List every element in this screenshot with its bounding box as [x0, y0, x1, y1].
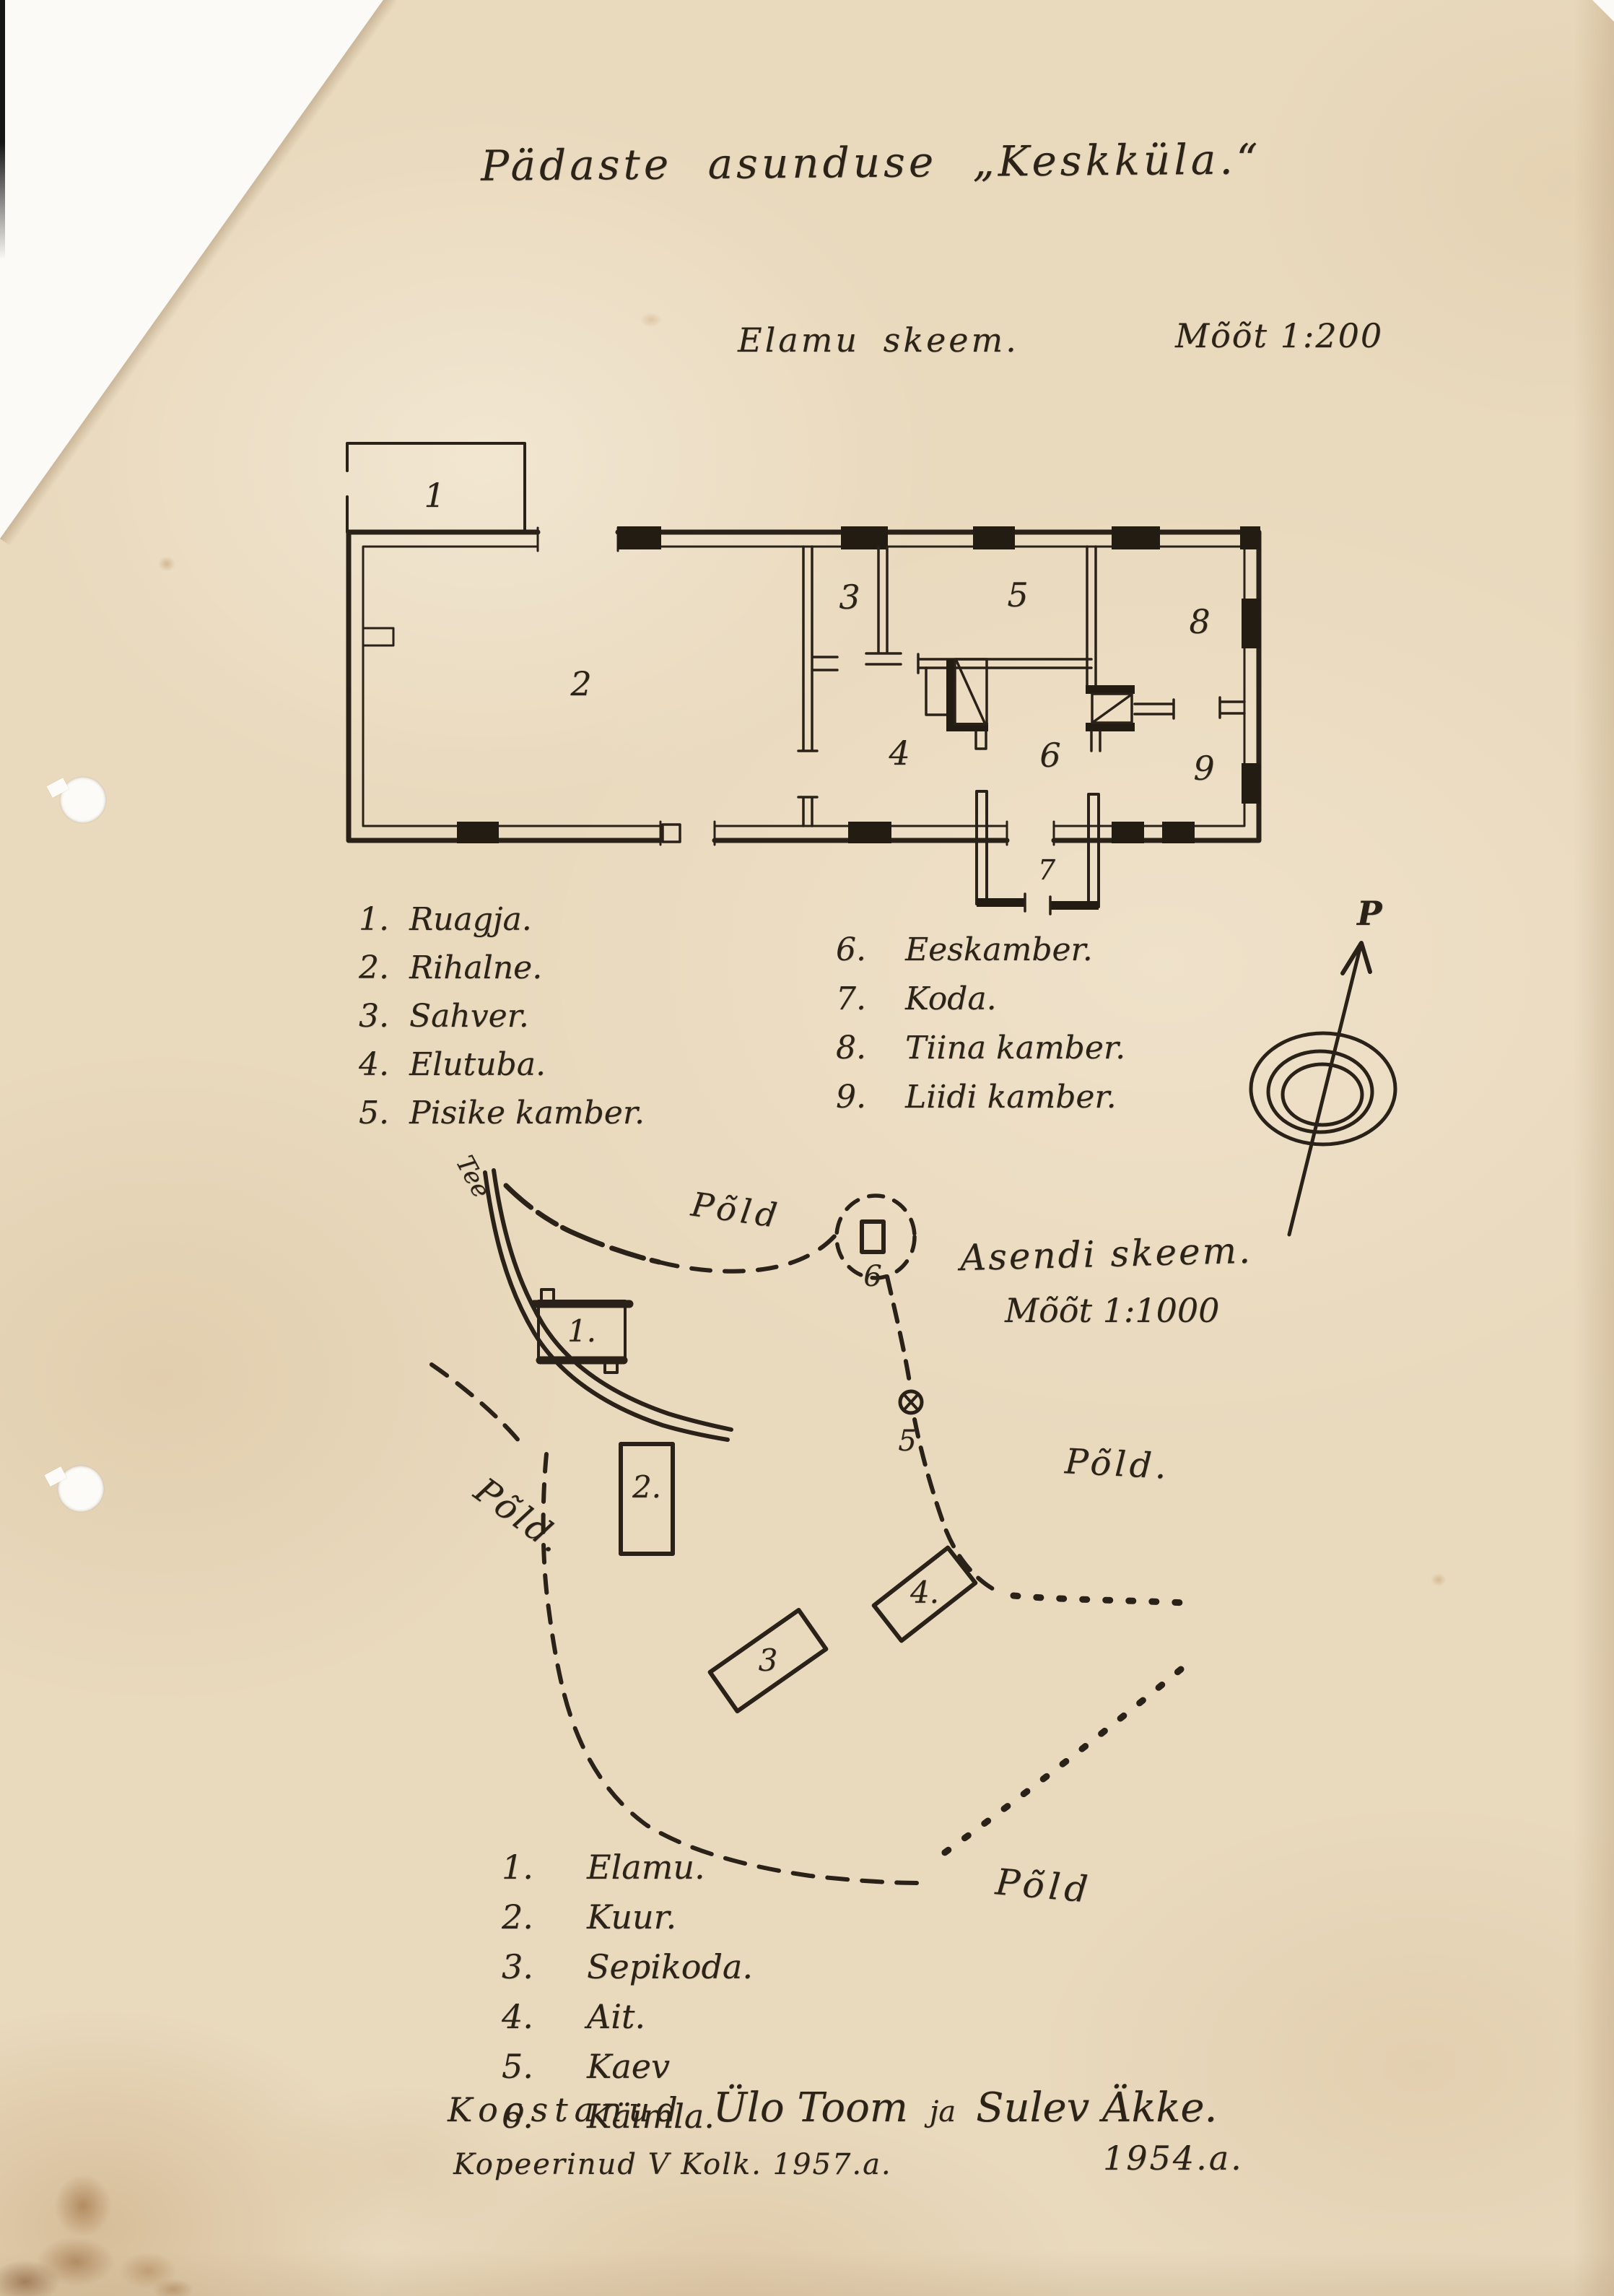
legend-item: 4.Elutuba.	[359, 1040, 645, 1089]
legend-item-number: 1.	[502, 1843, 587, 1892]
scanned-plan-page: Pädaste asunduse „Keskküla.“ Elamu skeem…	[0, 0, 1614, 2296]
legend-item-number: 5.	[502, 2042, 587, 2092]
credits-year-right: 1954.a.	[1103, 2141, 1244, 2175]
legend-item-label: Ruagja.	[409, 895, 532, 944]
legend-item-number: 5.	[359, 1089, 409, 1137]
legend-item: 8.Tiina kamber.	[836, 1024, 1125, 1073]
compass-label: P	[1357, 897, 1382, 930]
site-marker-2: 2.	[632, 1472, 661, 1503]
porch-walls	[977, 791, 1099, 914]
legend-item: 1.Ruagja.	[359, 895, 645, 944]
legend-item: 1.Elamu.	[502, 1843, 753, 1892]
legend-item-number: 3.	[359, 992, 409, 1040]
room-number-4: 4	[889, 736, 909, 770]
room-number-5: 5	[1007, 578, 1028, 612]
room-number-1: 1	[424, 479, 445, 512]
page-title: Pädaste asunduse „Keskküla.“	[481, 138, 1262, 186]
site-marker-3: 3	[759, 1645, 778, 1676]
legend-item-number: 3.	[502, 1942, 587, 1992]
legend-item: 5.Pisike kamber.	[359, 1089, 645, 1137]
stove-symbol	[946, 659, 988, 749]
credits-prefix: Koostanud	[448, 2093, 684, 2126]
legend-item-label: Kuur.	[587, 1892, 676, 1942]
legend-item-label: Sahver.	[409, 992, 529, 1040]
well-symbol	[900, 1391, 922, 1413]
hole-punch	[60, 777, 106, 823]
legend-item-number: 6.	[836, 926, 905, 975]
stove-symbol	[1086, 685, 1135, 751]
credits-author-2: Sulev Äkke.	[976, 2088, 1217, 2128]
legend-item-number: 9.	[836, 1073, 905, 1122]
legend-item-label: Pisike kamber.	[409, 1089, 645, 1137]
site-marker-4: 4.	[910, 1578, 939, 1608]
field-label-right: Põld.	[1064, 1444, 1171, 1484]
legend-item: 3.Sahver.	[359, 992, 645, 1040]
floor-plan-drawing	[347, 443, 1260, 914]
legend-item-label: Ait.	[587, 1992, 645, 2042]
floorplan-legend-left: 1.Ruagja. 2.Rihalne. 3.Sahver. 4.Elutuba…	[359, 895, 645, 1137]
legend-item-label: Tiina kamber.	[905, 1024, 1125, 1073]
legend-item-number: 4.	[502, 1992, 587, 2042]
building-6-outline	[862, 1222, 884, 1252]
floorplan-scale: Mõõt 1:200	[1175, 319, 1383, 352]
legend-item-label: Koda.	[905, 975, 997, 1024]
credits-line-authors: Koostanud Ülo Toom ja Sulev Äkke.	[448, 2088, 1217, 2128]
floorplan-legend-right: 6.Eeskamber. 7.Koda. 8.Tiina kamber. 9.L…	[836, 926, 1125, 1122]
credits-conjunction: ja	[930, 2097, 956, 2126]
floorplan-heading: Elamu skeem.	[738, 323, 1019, 357]
siteplan-scale: Mõõt 1:1000	[1005, 1294, 1219, 1327]
legend-item-number: 7.	[836, 975, 905, 1024]
room-number-3: 3	[839, 580, 860, 614]
legend-item-label: Rihalne.	[409, 944, 542, 992]
legend-item-label: Liidi kamber.	[905, 1073, 1117, 1122]
legend-item-number: 8.	[836, 1024, 905, 1073]
site-marker-5: 5	[898, 1427, 916, 1456]
legend-item-number: 2.	[359, 944, 409, 992]
compass-north-arrow	[1251, 943, 1395, 1235]
legend-item-label: Elamu.	[587, 1843, 705, 1892]
legend-item-label: Sepikoda.	[587, 1942, 753, 1992]
legend-item-number: 2.	[502, 1892, 587, 1942]
room-number-7: 7	[1038, 856, 1055, 884]
legend-item: 4.Ait.	[502, 1992, 753, 2042]
site-marker-1: 1.	[567, 1316, 596, 1347]
siteplan-heading: Asendi skeem.	[959, 1232, 1252, 1277]
legend-item-label: Kaev	[587, 2042, 670, 2092]
legend-item: 9.Liidi kamber.	[836, 1073, 1125, 1122]
legend-item-label: Elutuba.	[409, 1040, 546, 1089]
room-number-2: 2	[570, 667, 591, 700]
legend-item-number: 1.	[359, 895, 409, 944]
legend-item: 3.Sepikoda.	[502, 1942, 753, 1992]
credits-author-1: Ülo Toom	[713, 2088, 908, 2128]
room-number-6: 6	[1039, 739, 1060, 772]
field-label-bottom: Põld	[994, 1864, 1094, 1908]
site-marker-6: 6	[863, 1262, 881, 1291]
legend-item: 2.Kuur.	[502, 1892, 753, 1942]
legend-item: 2.Rihalne.	[359, 944, 645, 992]
legend-item: 6.Eeskamber.	[836, 926, 1125, 975]
legend-item-label: Eeskamber.	[905, 926, 1093, 975]
hole-punch	[58, 1466, 104, 1512]
room-number-9: 9	[1193, 752, 1214, 785]
legend-item-number: 4.	[359, 1040, 409, 1089]
room-number-8: 8	[1189, 605, 1210, 638]
credits-line-copyist: Kopeerinud V Kolk. 1957.a.	[453, 2150, 892, 2179]
legend-item: 7.Koda.	[836, 975, 1125, 1024]
